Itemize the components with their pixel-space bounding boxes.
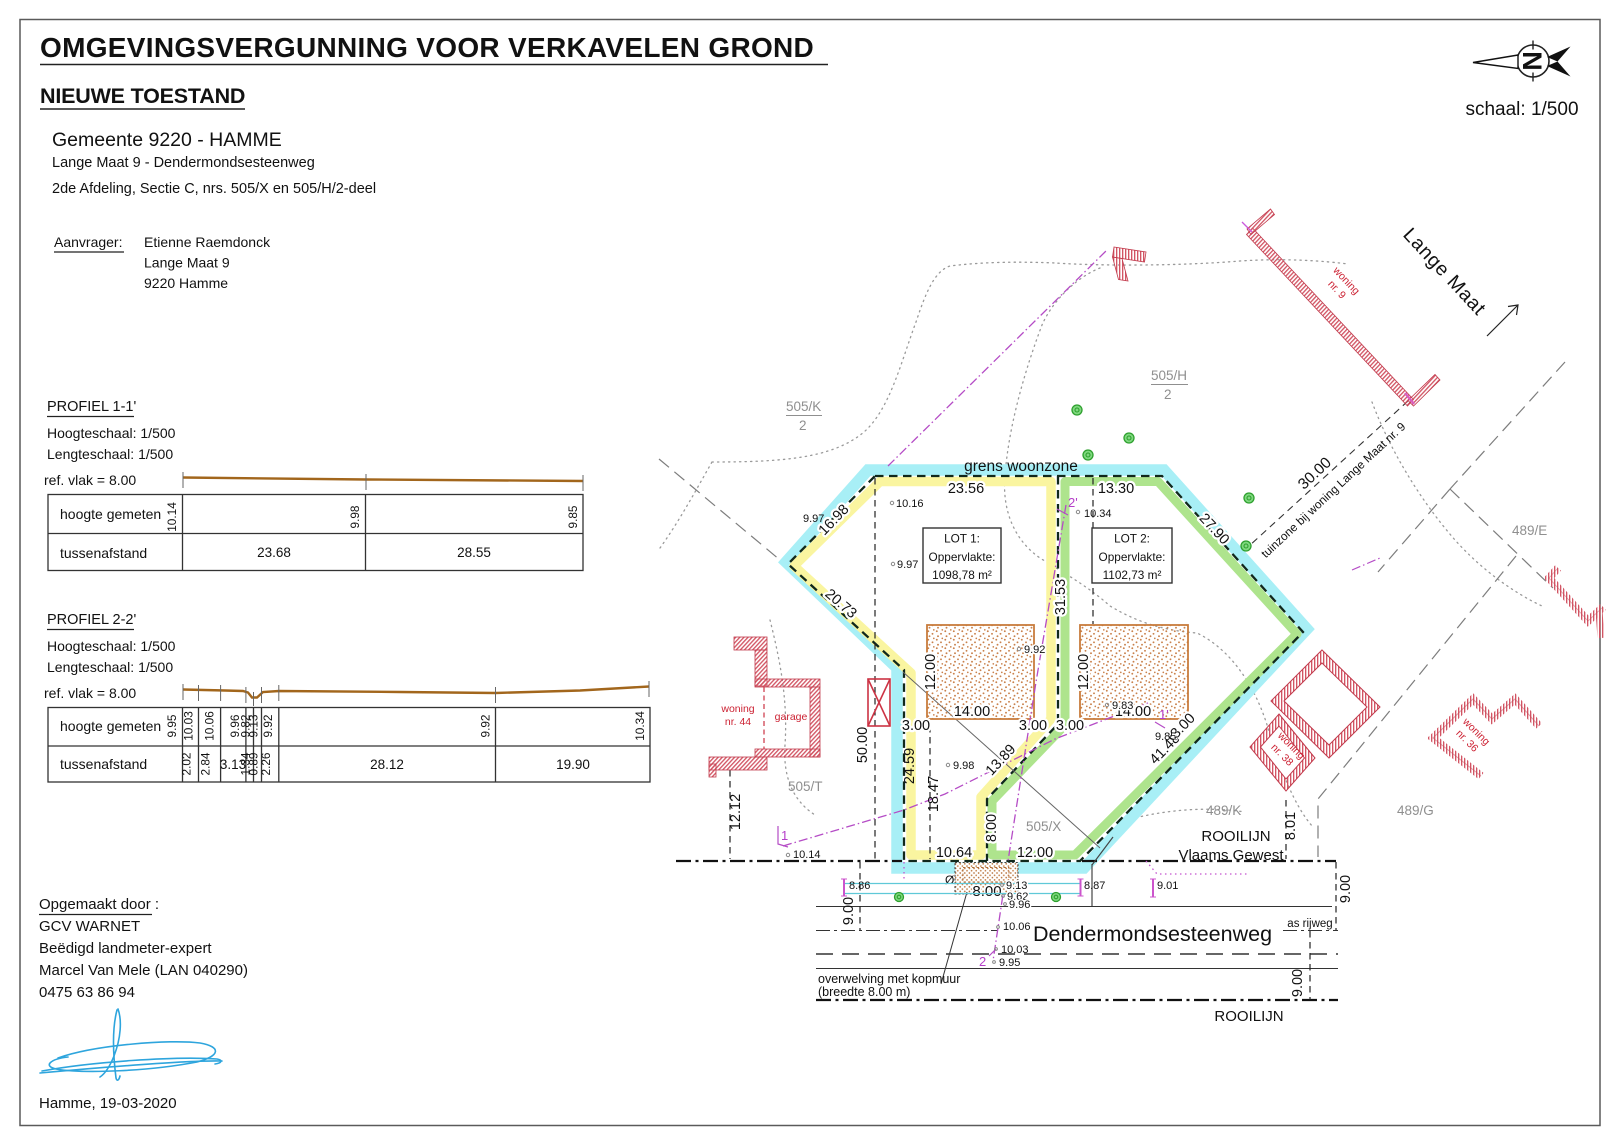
- svg-text:Gemeente 9220 - HAMME: Gemeente 9220 - HAMME: [52, 129, 282, 151]
- svg-text:9.92: 9.92: [1024, 644, 1045, 656]
- svg-text:489/E: 489/E: [1512, 523, 1547, 538]
- svg-text:tussenafstand: tussenafstand: [60, 756, 147, 772]
- svg-text:2: 2: [799, 418, 807, 433]
- svg-text:489/G: 489/G: [1397, 803, 1434, 818]
- svg-text:1': 1': [1159, 707, 1169, 722]
- svg-text:LOT 1:: LOT 1:: [944, 532, 980, 546]
- svg-text:grens woonzone: grens woonzone: [964, 458, 1078, 475]
- svg-text:505/K: 505/K: [786, 399, 821, 414]
- svg-text:PROFIEL 2-2': PROFIEL 2-2': [47, 612, 136, 628]
- svg-text:9.83: 9.83: [1112, 700, 1133, 712]
- svg-text:ROOILIJN: ROOILIJN: [1201, 828, 1270, 845]
- svg-text:N: N: [1517, 51, 1547, 71]
- svg-text:1098,78 m²: 1098,78 m²: [932, 568, 992, 582]
- svg-text:9.13: 9.13: [247, 714, 261, 737]
- svg-text:24.59: 24.59: [902, 748, 918, 784]
- svg-text:8.00: 8.00: [984, 814, 1000, 842]
- svg-text:10.06: 10.06: [203, 711, 217, 741]
- svg-text:12.00: 12.00: [1017, 845, 1053, 861]
- svg-text:10.34: 10.34: [633, 711, 647, 741]
- svg-text:9.85: 9.85: [1155, 731, 1176, 743]
- svg-text:50.00: 50.00: [855, 727, 871, 763]
- svg-text:8.86: 8.86: [849, 880, 870, 892]
- svg-text:10.03: 10.03: [1001, 944, 1029, 956]
- svg-text:10.64: 10.64: [936, 845, 972, 861]
- svg-text:2de Afdeling, Sectie C, nrs. 5: 2de Afdeling, Sectie C, nrs. 505/X en 50…: [52, 181, 376, 197]
- svg-text:23.56: 23.56: [948, 481, 984, 497]
- svg-text:schaal: 1/500: schaal: 1/500: [1465, 99, 1578, 120]
- svg-text:2': 2': [1068, 495, 1078, 510]
- svg-text:28.12: 28.12: [370, 757, 404, 772]
- svg-text:Etienne Raemdonck: Etienne Raemdonck: [144, 234, 271, 250]
- svg-text:9.98: 9.98: [953, 760, 974, 772]
- svg-text:12.00: 12.00: [923, 654, 939, 690]
- svg-text:woning: woning: [720, 703, 754, 715]
- svg-text:10.14: 10.14: [165, 502, 179, 532]
- svg-text:Hoogteschaal: 1/500: Hoogteschaal: 1/500: [47, 425, 176, 441]
- svg-text:9220 Hamme: 9220 Hamme: [144, 275, 228, 291]
- svg-text:Lange Maat 9: Lange Maat 9: [144, 255, 230, 271]
- svg-text:2.26: 2.26: [259, 752, 273, 775]
- svg-text:8.01: 8.01: [1283, 812, 1299, 840]
- svg-text:9.96: 9.96: [1009, 899, 1030, 911]
- svg-text:ref. vlak = 8.00: ref. vlak = 8.00: [44, 685, 136, 701]
- svg-text:9.85: 9.85: [566, 505, 580, 528]
- svg-text:12.12: 12.12: [728, 794, 744, 830]
- svg-text:9.92: 9.92: [261, 715, 275, 738]
- svg-text:Vlaams Gewest: Vlaams Gewest: [1178, 847, 1284, 864]
- svg-text:Oppervlakte:: Oppervlakte:: [1099, 550, 1166, 564]
- svg-text:10.03: 10.03: [182, 711, 196, 741]
- svg-text:0475 63 86 94: 0475 63 86 94: [39, 984, 135, 1001]
- svg-text:Oppervlakte:: Oppervlakte:: [929, 550, 996, 564]
- svg-text:9.95: 9.95: [165, 714, 179, 737]
- svg-text:hoogte gemeten: hoogte gemeten: [60, 718, 161, 734]
- svg-text:505/T: 505/T: [788, 779, 823, 794]
- svg-text:Lengteschaal: 1/500: Lengteschaal: 1/500: [47, 659, 173, 675]
- svg-text:31.53: 31.53: [1053, 579, 1069, 615]
- svg-text:Lengteschaal: 1/500: Lengteschaal: 1/500: [47, 446, 173, 462]
- svg-text:505/X: 505/X: [1026, 819, 1061, 834]
- svg-text:8.87: 8.87: [1084, 880, 1105, 892]
- svg-text:3.00: 3.00: [1056, 718, 1084, 734]
- svg-text:9.92: 9.92: [479, 715, 493, 738]
- svg-text:2.02: 2.02: [180, 753, 194, 776]
- svg-text:(breedte 8.00 m): (breedte 8.00 m): [818, 985, 910, 999]
- svg-text:10.14: 10.14: [793, 849, 821, 861]
- svg-text:2.84: 2.84: [199, 752, 213, 775]
- svg-text:1102,73 m²: 1102,73 m²: [1103, 568, 1162, 582]
- svg-text:3.00: 3.00: [902, 718, 930, 734]
- svg-text:nr. 44: nr. 44: [725, 716, 751, 728]
- svg-text:9.95: 9.95: [999, 957, 1020, 969]
- svg-text:Marcel Van Mele (LAN 040290): Marcel Van Mele (LAN 040290): [39, 962, 248, 979]
- svg-text:2: 2: [1164, 387, 1172, 402]
- svg-text:overwelving met kopmuur: overwelving met kopmuur: [818, 972, 960, 986]
- svg-text:23.68: 23.68: [257, 545, 291, 560]
- svg-text:ref. vlak = 8.00: ref. vlak = 8.00: [44, 472, 136, 488]
- svg-text:PROFIEL 1-1': PROFIEL 1-1': [47, 399, 136, 415]
- svg-text:10.16: 10.16: [896, 498, 924, 510]
- svg-text:Aanvrager:: Aanvrager:: [54, 234, 122, 250]
- svg-text:NIEUWE TOESTAND: NIEUWE TOESTAND: [40, 84, 245, 108]
- svg-text:9.01: 9.01: [1157, 880, 1178, 892]
- svg-text:9.98: 9.98: [348, 505, 362, 528]
- svg-text:9.97: 9.97: [897, 559, 918, 571]
- svg-text:505/H: 505/H: [1151, 368, 1187, 383]
- svg-text:2: 2: [979, 954, 986, 969]
- svg-text:LOT 2:: LOT 2:: [1114, 532, 1150, 546]
- svg-text:14.00: 14.00: [954, 704, 990, 720]
- svg-text:ROOILIJN: ROOILIJN: [1214, 1008, 1283, 1025]
- svg-text:12.00: 12.00: [1076, 654, 1092, 690]
- svg-text:9.00: 9.00: [1338, 875, 1354, 903]
- svg-text:tussenafstand: tussenafstand: [60, 545, 147, 561]
- svg-text:13.30: 13.30: [1098, 481, 1134, 497]
- svg-text:Hoogteschaal: 1/500: Hoogteschaal: 1/500: [47, 638, 176, 654]
- svg-text:Dendermondsesteenweg: Dendermondsesteenweg: [1033, 922, 1272, 946]
- svg-text:garage: garage: [775, 711, 808, 723]
- svg-text:10.06: 10.06: [1003, 921, 1031, 933]
- svg-text:10.34: 10.34: [1084, 508, 1112, 520]
- svg-text:8.00: 8.00: [972, 883, 1001, 900]
- svg-text:9.00: 9.00: [841, 897, 857, 925]
- svg-text:Opgemaakt door :: Opgemaakt door :: [39, 896, 159, 913]
- svg-text:9.97: 9.97: [803, 513, 824, 525]
- svg-text:1: 1: [781, 828, 788, 843]
- svg-text:Lange Maat 9 - Dendermondseste: Lange Maat 9 - Dendermondsesteenweg: [52, 155, 315, 171]
- svg-text:GCV WARNET: GCV WARNET: [39, 918, 140, 935]
- svg-text:28.55: 28.55: [457, 545, 491, 560]
- svg-text:Ø: Ø: [945, 873, 954, 887]
- svg-text:Beëdigd landmeter-expert: Beëdigd landmeter-expert: [39, 940, 212, 957]
- svg-text:Hamme, 19-03-2020: Hamme, 19-03-2020: [39, 1095, 177, 1112]
- svg-text:19.90: 19.90: [556, 757, 590, 772]
- svg-text:9.00: 9.00: [1290, 969, 1306, 997]
- svg-text:3.00: 3.00: [1019, 718, 1047, 734]
- svg-text:OMGEVINGSVERGUNNING VOOR VERKA: OMGEVINGSVERGUNNING VOOR VERKAVELEN GRON…: [40, 32, 814, 63]
- svg-text:489/K: 489/K: [1206, 803, 1241, 818]
- svg-text:as rijweg: as rijweg: [1287, 918, 1332, 930]
- svg-text:hoogte gemeten: hoogte gemeten: [60, 506, 161, 522]
- svg-text:18.47: 18.47: [926, 776, 942, 812]
